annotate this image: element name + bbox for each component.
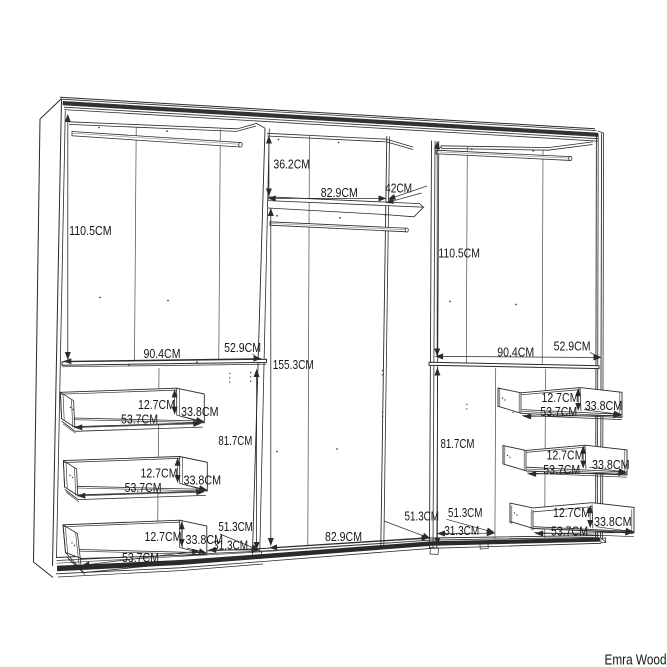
svg-text:12.7CM: 12.7CM <box>138 397 175 412</box>
svg-text:53.7CM: 53.7CM <box>122 550 159 565</box>
svg-text:12.7CM: 12.7CM <box>553 505 590 520</box>
svg-text:155.3CM: 155.3CM <box>273 357 314 372</box>
svg-text:42CM: 42CM <box>385 181 412 196</box>
svg-text:Emra Wood: Emra Wood <box>605 652 667 667</box>
svg-text:31.3CM: 31.3CM <box>444 523 479 538</box>
svg-text:52.9CM: 52.9CM <box>554 338 591 353</box>
svg-text:12.7CM: 12.7CM <box>547 448 584 463</box>
svg-text:53.7CM: 53.7CM <box>543 462 580 477</box>
svg-text:33.8CM: 33.8CM <box>585 398 623 413</box>
svg-text:53.7CM: 53.7CM <box>540 404 577 419</box>
svg-text:33.8CM: 33.8CM <box>181 404 219 419</box>
svg-text:53.7CM: 53.7CM <box>125 480 162 495</box>
svg-text:110.5CM: 110.5CM <box>69 223 112 238</box>
svg-text:31.3CM: 31.3CM <box>213 537 248 552</box>
svg-text:81.7CM: 81.7CM <box>441 436 475 451</box>
svg-text:33.8CM: 33.8CM <box>594 514 632 529</box>
svg-text:51.3CM: 51.3CM <box>218 519 253 534</box>
svg-text:33.8CM: 33.8CM <box>592 457 630 472</box>
svg-text:51.3CM: 51.3CM <box>448 505 483 520</box>
svg-text:12.7CM: 12.7CM <box>145 529 182 544</box>
svg-text:12.7CM: 12.7CM <box>141 465 178 480</box>
svg-text:110.5CM: 110.5CM <box>438 245 480 260</box>
svg-text:81.7CM: 81.7CM <box>218 433 252 448</box>
svg-text:82.9CM: 82.9CM <box>321 185 358 200</box>
svg-text:36.2CM: 36.2CM <box>273 157 310 172</box>
svg-text:52.9CM: 52.9CM <box>224 340 261 355</box>
svg-text:53.7CM: 53.7CM <box>551 524 588 539</box>
svg-text:51.3CM: 51.3CM <box>405 508 440 523</box>
svg-text:33.8CM: 33.8CM <box>184 473 222 488</box>
svg-text:53.7CM: 53.7CM <box>121 411 158 426</box>
svg-text:90.4CM: 90.4CM <box>144 346 181 361</box>
svg-text:90.4CM: 90.4CM <box>497 345 534 360</box>
svg-text:82.9CM: 82.9CM <box>325 529 362 544</box>
